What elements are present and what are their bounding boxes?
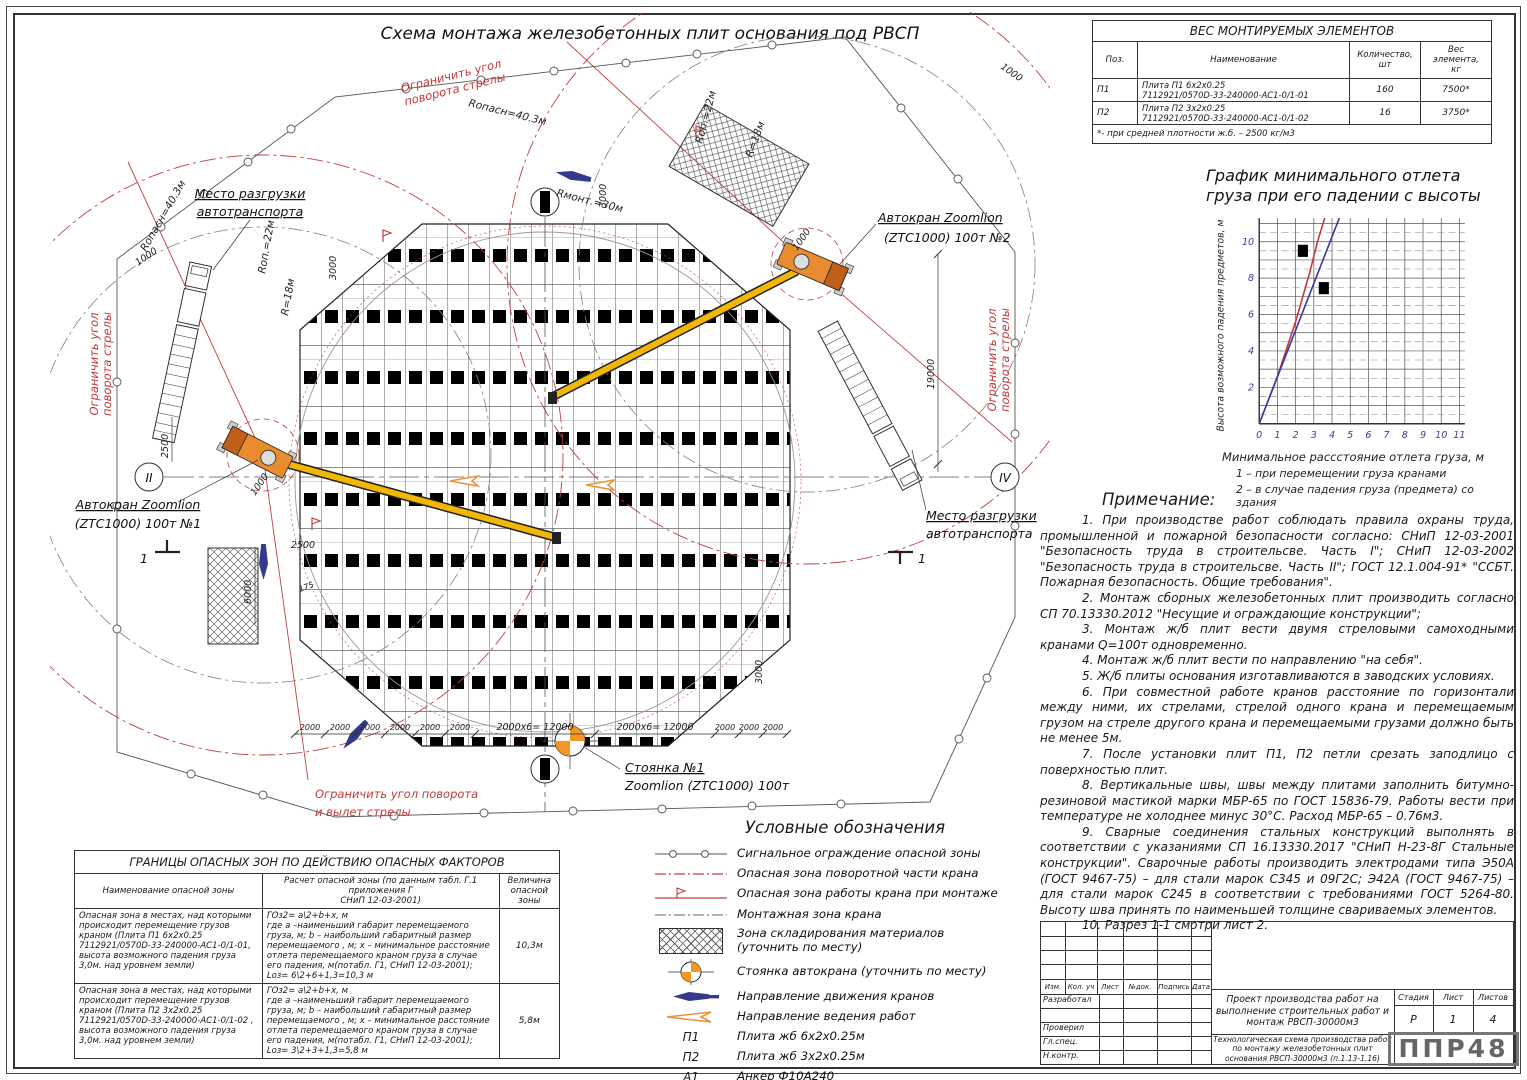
dim-2000: 2000 xyxy=(330,723,350,732)
svg-text:Ограничить угол: Ограничить угол xyxy=(985,308,999,412)
weights-table-title: ВЕС МОНТИРУЕМЫХ ЭЛЕМЕНТОВ xyxy=(1093,21,1492,42)
dim-6000: 6000 xyxy=(243,580,254,604)
dim-2000: 2000 xyxy=(739,723,759,732)
sheet-value: 1 xyxy=(1433,1005,1473,1034)
dim-3000: 3000 xyxy=(754,660,765,684)
y-tick-label: 6 xyxy=(1248,310,1254,321)
y-tick-label: 8 xyxy=(1248,273,1254,284)
x-tick-label: 0 xyxy=(1256,430,1262,441)
section-mark-right xyxy=(888,552,913,564)
stage-label: Стадия xyxy=(1394,989,1433,1005)
unload-top-leader xyxy=(213,220,250,270)
crane1-body xyxy=(217,421,297,483)
stand-label-leader xyxy=(584,747,620,769)
y-tick-label: 4 xyxy=(1248,346,1254,357)
axis-right-label: IV xyxy=(999,471,1012,485)
notes-heading: Примечание: xyxy=(1102,490,1514,509)
legend-item: П1 Плита жб 6х2х0.25м xyxy=(645,1028,1045,1045)
crane2-label: Автокран Zoomlion xyxy=(877,210,1003,225)
x-tick-label: 7 xyxy=(1384,430,1391,441)
crane-move-arrow-icon xyxy=(645,992,737,1002)
legend-title: Условные обозначения xyxy=(645,818,1045,837)
note-item: 3. Монтаж ж/б плит вести двумя стреловым… xyxy=(1040,622,1514,653)
y-tick-label: 2 xyxy=(1248,382,1254,393)
storage-zone-icon xyxy=(645,928,737,954)
unload-top-label: Место разгрузки xyxy=(195,186,306,201)
montage-zone-line-icon xyxy=(645,911,737,919)
crane-move-arrow-top xyxy=(555,168,592,184)
radius-label-opasn-top: Rопасн=40.3м xyxy=(467,97,547,128)
chart-x-axis-label: Минимальное рассстояние отлета груза, м xyxy=(1198,450,1508,464)
svg-text:Ограничить угол поворота: Ограничить угол поворота xyxy=(315,787,478,801)
table-row: Опасная зона в местах, над которыми прои… xyxy=(75,909,560,984)
section-mark-left xyxy=(155,540,180,552)
axis-marker-top xyxy=(531,188,559,216)
svg-text:поворота стрелы: поворота стрелы xyxy=(100,312,114,416)
radius-label-opasn-left: Rопасн=40.3м xyxy=(138,178,188,253)
work-direction-arrow-icon xyxy=(645,1011,737,1023)
svg-text:Ограничить угол: Ограничить угол xyxy=(87,312,101,416)
note-item: 1. При производстве работ соблюдать прав… xyxy=(1040,513,1514,591)
note-item: 7. После установки плит П1, П2 петли сре… xyxy=(1040,747,1514,778)
legend-item: Опасная зона поворотной части крана xyxy=(645,865,1045,882)
note-item: 2. Монтаж сборных железобетонных плит пр… xyxy=(1040,591,1514,622)
col-pos: Поз. xyxy=(1093,42,1138,79)
dim-19000: 19000 xyxy=(926,359,937,389)
hazard-table-title: ГРАНИЦЫ ОПАСНЫХ ЗОН ПО ДЕЙСТВИЮ ОПАСНЫХ … xyxy=(75,851,560,874)
x-tick-label: 8 xyxy=(1402,430,1408,441)
crane1-hook xyxy=(552,532,561,544)
radius-label-r18-left: R=18м xyxy=(279,278,297,317)
svg-text:и вылет стрелы: и вылет стрелы xyxy=(315,805,411,819)
col-podpis: Подпись xyxy=(1157,979,1191,994)
section-left-label: 1 xyxy=(140,551,148,566)
dim-3000: 3000 xyxy=(328,256,339,280)
axis-left-label: II xyxy=(145,471,153,485)
note-item: 5. Ж/б плиты основания изготавливаются в… xyxy=(1040,669,1514,685)
col-qty: Количество, шт xyxy=(1350,42,1421,79)
legend-item: Направление ведения работ xyxy=(645,1008,1045,1025)
dim-2000: 2000 xyxy=(390,723,410,732)
table-row: П1 Плита П1 6х2х0.25 7112921/0570D-33-24… xyxy=(1093,79,1492,102)
document-title: Технологическая схема производства работ… xyxy=(1213,1034,1392,1064)
chart-series-1 xyxy=(1259,218,1325,424)
dim-2500: 2500 xyxy=(291,540,315,551)
legend-key-p2: П2 xyxy=(645,1050,737,1064)
stand-label: Zoomlion (ZTC1000) 100т xyxy=(624,778,790,793)
legend-item: Монтажная зона крана xyxy=(645,906,1045,923)
notes-section: Примечание: 1. При производстве работ со… xyxy=(1040,490,1514,934)
crane2-hook xyxy=(548,392,557,404)
row-glspec: Гл.спец. xyxy=(1043,1037,1099,1050)
site-plan: II IV 1 1 2000 2000 xyxy=(50,12,1050,840)
dim-2000: 2000 xyxy=(450,723,470,732)
dim-12000: 2000х6= 12000 xyxy=(496,722,573,733)
dim-2000: 2000 xyxy=(360,723,380,732)
signal-fence-icon xyxy=(645,849,737,859)
title-block: Изм. Кол. уч Лист №док. Подпись Дата Раз… xyxy=(1040,921,1514,1065)
crane2-label-leader xyxy=(840,224,876,264)
work-danger-line-icon xyxy=(645,885,737,903)
crane2-body xyxy=(773,238,854,296)
note-item: 8. Вертикальные швы, швы между плитами з… xyxy=(1040,778,1514,825)
table-row: П2 Плита П2 3х2х0.25 7112921/0570D-33-24… xyxy=(1093,102,1492,125)
legend-item: Направление движения кранов xyxy=(645,988,1045,1005)
weights-table-footnote: *- при средней плотности ж.б. – 2500 кг/… xyxy=(1093,125,1492,144)
section-right-label: 1 xyxy=(918,551,926,566)
stage-value: Р xyxy=(1394,1005,1433,1034)
legend-item: Зона складирования материалов (уточнить … xyxy=(645,926,1045,956)
danger-flag-1 xyxy=(383,230,391,242)
axis-marker-left: II xyxy=(135,463,163,491)
chart-marker xyxy=(1298,245,1308,257)
col-hazard-name: Наименование опасной зоны xyxy=(75,874,263,909)
note-item: 6. При совместной работе кранов расстоян… xyxy=(1040,685,1514,747)
sheet-label: Лист xyxy=(1433,989,1473,1005)
truck-unloading-top xyxy=(153,262,212,443)
col-hazard-value: Величина опасной зоны xyxy=(499,874,560,909)
crane2-label: (ZTC1000) 100т №2 xyxy=(884,230,1011,245)
chart-title: График минимального отлета груза при его… xyxy=(1206,166,1508,206)
drawing-sheet: Схема монтажа железобетонных плит основа… xyxy=(0,0,1527,1080)
stand-label: Стоянка №1 xyxy=(625,760,705,775)
x-tick-label: 1 xyxy=(1274,430,1280,441)
note-item: 9. Сварные соединения стальных конструкц… xyxy=(1040,825,1514,919)
legend-item: Опасная зона работы крана при монтаже xyxy=(645,885,1045,903)
row-razrabotal: Разработал xyxy=(1043,995,1099,1008)
sheets-label: Листов xyxy=(1473,989,1513,1005)
x-tick-label: 4 xyxy=(1329,430,1335,441)
dim-2000: 2000 xyxy=(420,723,440,732)
radius-label-op22-left: Rоп.=22м xyxy=(256,219,277,274)
sheets-value: 4 xyxy=(1473,1005,1513,1034)
dim-12000: 2000х6= 12000 xyxy=(616,722,693,733)
legend-item: Стоянка автокрана (уточнить по месту) xyxy=(645,959,1045,985)
dim-2500: 2500 xyxy=(160,434,171,458)
limit-text-left: Ограничить угол поворота стрелы xyxy=(87,312,114,416)
legend-item: П2 Плита жб 3х2х0.25м xyxy=(645,1048,1045,1065)
chart-legend-line-1: 1 – при перемещении груза кранами xyxy=(1236,467,1508,480)
row-nkontr: Н.контр. xyxy=(1043,1051,1099,1064)
storage-zone-top xyxy=(669,104,809,226)
dim-2000: 2000 xyxy=(763,723,783,732)
x-tick-label: 9 xyxy=(1420,430,1426,441)
radius-label-mont: Rмонт.=30м xyxy=(555,187,624,215)
x-tick-label: 10 xyxy=(1435,430,1447,441)
note-item: 4. Монтаж ж/б плит вести по направлению … xyxy=(1040,653,1514,669)
crane1-label: (ZTC1000) 100т №1 xyxy=(75,516,202,531)
chart-plot: 01234567891011246810 xyxy=(1232,212,1484,448)
col-izm: Изм. xyxy=(1041,979,1065,994)
legend-key-a1: А1 xyxy=(645,1070,737,1080)
x-tick-label: 6 xyxy=(1365,430,1371,441)
slew-danger-line-icon xyxy=(645,870,737,878)
limit-text-top: Ограничить угол поворота стрелы xyxy=(399,56,507,108)
dim-1000: 1000 xyxy=(248,472,271,498)
weights-table: ВЕС МОНТИРУЕМЫХ ЭЛЕМЕНТОВ Поз. Наименова… xyxy=(1092,20,1492,144)
project-name: Проект производства работ на выполнение … xyxy=(1213,989,1392,1034)
dim-1000: 1000 xyxy=(998,61,1024,84)
crane-move-arrow-left xyxy=(259,544,268,580)
unload-top-label: автотранспорта xyxy=(197,204,304,219)
limit-text-right: Ограничить угол поворота стрелы xyxy=(985,308,1012,412)
dim-2000: 2000 xyxy=(300,723,320,732)
dim-2000: 2000 xyxy=(715,723,735,732)
col-data: Дата xyxy=(1191,979,1211,994)
crane1-label-leader xyxy=(178,460,258,502)
x-tick-label: 3 xyxy=(1311,430,1317,441)
unload-right-label: автотранспорта xyxy=(926,526,1033,541)
legend-item: А1 Анкер Ф10А240 xyxy=(645,1068,1045,1080)
crane1-label: Автокран Zoomlion xyxy=(75,497,201,512)
axis-marker-right: IV xyxy=(991,463,1019,491)
x-tick-label: 2 xyxy=(1293,430,1299,441)
company-logo: ППР48 xyxy=(1394,1034,1513,1064)
crane-stand-icon xyxy=(645,959,737,985)
col-weight: Вес элемента, кг xyxy=(1421,42,1492,79)
svg-text:поворота стрелы: поворота стрелы xyxy=(998,308,1012,412)
x-tick-label: 11 xyxy=(1453,430,1465,441)
truck-unloading-right xyxy=(818,321,922,490)
fall-distance-chart: График минимального отлета груза при его… xyxy=(1198,166,1508,509)
table-row: Опасная зона в местах, над которыми прои… xyxy=(75,984,560,1059)
col-name: Наименование xyxy=(1138,42,1350,79)
col-ndok: №док. xyxy=(1123,979,1157,994)
chart-marker xyxy=(1319,282,1329,294)
chart-y-axis-label: Высота возможного падения предметов, м xyxy=(1216,218,1227,434)
y-tick-label: 10 xyxy=(1242,237,1254,248)
legend-key-p1: П1 xyxy=(645,1030,737,1044)
col-koluch: Кол. уч xyxy=(1065,979,1097,994)
unload-right-label: Место разгрузки xyxy=(926,508,1037,523)
axis-marker-bottom xyxy=(531,755,559,783)
col-list: Лист xyxy=(1097,979,1123,994)
x-tick-label: 5 xyxy=(1347,430,1353,441)
legend: Условные обозначения Сигнальное огражден… xyxy=(645,818,1045,1080)
row-blank xyxy=(1043,1009,1099,1022)
row-proveril: Проверил xyxy=(1043,1023,1099,1036)
col-hazard-calc: Расчет опасной зоны (по данным табл. Г.1… xyxy=(262,874,499,909)
legend-item: Сигнальное ограждение опасной зоны xyxy=(645,845,1045,862)
hazard-zones-table: ГРАНИЦЫ ОПАСНЫХ ЗОН ПО ДЕЙСТВИЮ ОПАСНЫХ … xyxy=(74,850,560,1059)
